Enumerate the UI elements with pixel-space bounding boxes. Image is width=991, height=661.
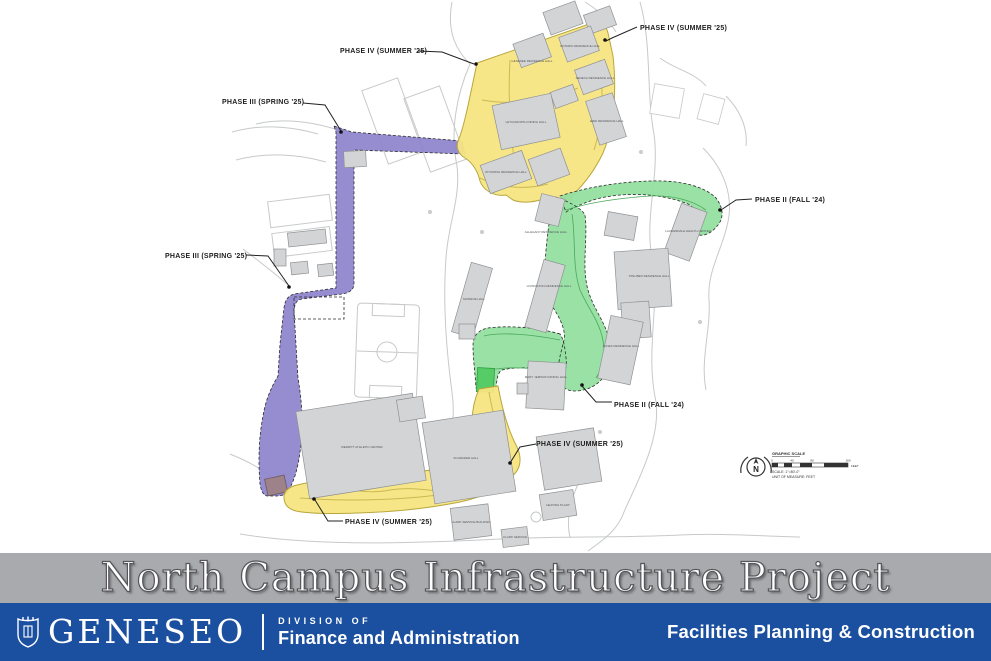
graphic-scale-heading: GRAPHIC SCALE	[772, 451, 805, 456]
building-label: MERRITT ATHLETIC CENTER	[341, 445, 383, 449]
soccer-field	[354, 303, 419, 399]
building-label: ONTARIO RESIDENCE HALL	[560, 44, 600, 48]
building-label: GENESEE RESIDENCE HALL	[511, 59, 553, 63]
building-label: WYOMING RESIDENCE HALL	[485, 170, 527, 174]
building-label: CLARK SERVICE	[503, 535, 527, 539]
geneseo-wordmark: GENESEO	[48, 615, 246, 648]
division-block: DIVISION OF Finance and Administration	[278, 616, 520, 649]
north-letter: N	[753, 465, 759, 474]
scale-note: SCALE: 1"=80'-0"	[772, 470, 800, 474]
title-banner: North Campus Infrastructure Project	[0, 553, 991, 603]
building-label: SCHRADER HALL	[453, 456, 479, 460]
division-label: DIVISION OF	[278, 616, 520, 626]
background-buildings	[650, 84, 725, 125]
department-name: Facilities Planning & Construction	[667, 621, 975, 643]
phase-label: PHASE IV (SUMMER '25)	[345, 519, 432, 526]
division-name: Finance and Administration	[278, 628, 520, 649]
building-label: JONES RESIDENCE HALL	[603, 344, 640, 348]
page-title: North Campus Infrastructure Project	[101, 555, 891, 601]
building-label: ERIE RESIDENCE HALL	[590, 119, 624, 123]
geneseo-shield-icon	[16, 616, 40, 648]
footer-bar: GENESEO DIVISION OF Finance and Administ…	[0, 603, 991, 661]
building-label: LIVINGSTON RESIDENCE HALL	[527, 284, 572, 288]
slide: ONTARIO RESIDENCE HALL GENESEE RESIDENCE…	[0, 0, 991, 661]
building-label: CLARK SERVICE BUILDING	[452, 520, 492, 524]
graphic-scale: GRAPHIC SCALE 0 40 80 160 FEET SCALE: 1"…	[771, 451, 859, 479]
unit-note: UNIT OF MEASURE: FEET	[772, 475, 816, 479]
scale-tick: 80	[810, 459, 814, 463]
phase-label: PHASE II (FALL '24)	[755, 197, 825, 204]
building-label: LETCHWORTH DINING HALL	[506, 120, 547, 124]
building-label: LAUDERDALE HEALTH CENTER	[665, 229, 711, 233]
phase-label: PHASE II (FALL '24)	[614, 402, 684, 409]
phase-label: PHASE IV (SUMMER '25)	[640, 25, 727, 32]
building-label: SENECA RESIDENCE HALL	[576, 76, 615, 80]
north-arrow-icon: N	[741, 457, 771, 476]
building-label: HEATING PLANT	[546, 503, 570, 507]
footer-brand: GENESEO DIVISION OF Finance and Administ…	[16, 614, 520, 650]
footer-divider	[262, 614, 264, 650]
phase-label: PHASE III (SPRING '25)	[222, 99, 304, 106]
phase-label: PHASE III (SPRING '25)	[165, 253, 247, 260]
scale-tick: 0	[771, 459, 773, 463]
phase-label: PHASE IV (SUMMER '25)	[340, 48, 427, 55]
building-label: MONROE HALL	[463, 297, 485, 301]
building-label: ALLEGANY RESIDENCE HALL	[525, 230, 568, 234]
scale-tick: 160	[845, 459, 850, 463]
building-label: MARY JEMISON DINING HALL	[525, 375, 568, 379]
campus-map: ONTARIO RESIDENCE HALL GENESEE RESIDENCE…	[0, 0, 991, 553]
scale-feet-label: FEET	[851, 464, 859, 468]
building-label: STEUBEN RESIDENCE HALL	[629, 274, 670, 278]
phase3-end-patch	[265, 475, 288, 496]
limit-of-work-dashed-box	[294, 297, 344, 319]
phase-label: PHASE IV (SUMMER '25)	[536, 441, 623, 448]
campus-map-svg: ONTARIO RESIDENCE HALL GENESEE RESIDENCE…	[0, 0, 991, 553]
scale-tick: 40	[790, 459, 794, 463]
